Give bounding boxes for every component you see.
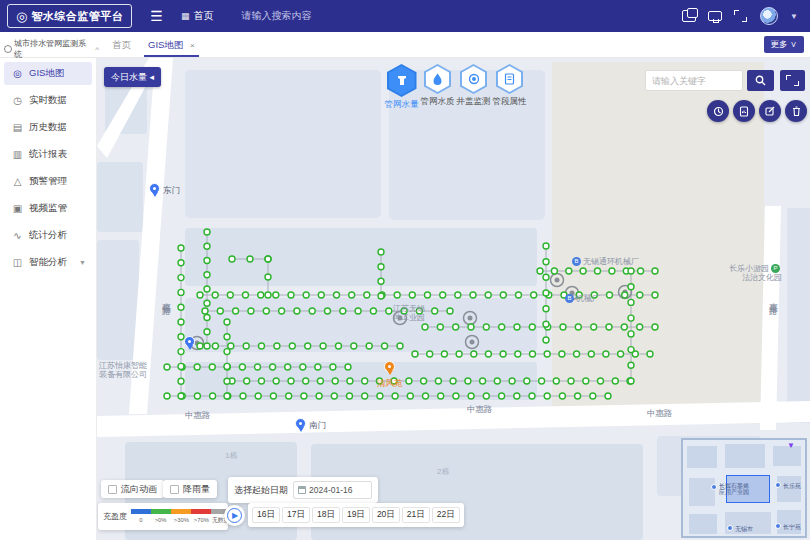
report-icon (739, 106, 749, 117)
date-button-22[interactable]: 22日 (432, 507, 460, 523)
water-meter-icon (396, 75, 408, 87)
alert-icon: △ (12, 176, 23, 187)
date-button-18[interactable]: 18日 (312, 507, 340, 523)
legend-item: >0% (151, 509, 171, 525)
minimap-pin (711, 484, 717, 490)
map-pin[interactable] (184, 336, 195, 350)
app-logo: ◎ 智水综合监管平台 (7, 4, 132, 28)
sidebar-item-realtime-data[interactable]: ◷ 实时数据 (4, 89, 92, 112)
line-chart-icon: ∿ (12, 230, 23, 241)
keyword-search-input[interactable] (645, 70, 743, 91)
tab-close-icon[interactable]: × (190, 41, 195, 50)
analysis-icon: ◫ (12, 257, 23, 268)
tab-gis-map[interactable]: GIS地图 × (144, 32, 199, 57)
legend-item: >70% (191, 509, 211, 525)
water-swirl-logo-icon: ◎ (16, 9, 27, 24)
clock-icon: ◷ (12, 95, 23, 106)
sidebar-item-video-monitor[interactable]: ▣ 视频监管 (4, 197, 92, 220)
menu-toggle-icon[interactable]: ☰ (150, 8, 163, 24)
checkbox-icon (170, 485, 179, 494)
play-button[interactable]: ▶ (224, 505, 245, 526)
minimap-label: 长辉石墨烯应用产业园 (719, 482, 749, 495)
calendar-icon (298, 486, 306, 494)
history-icon: ▤ (12, 122, 23, 133)
legend-title: 充盈度 (103, 511, 127, 522)
minimap-pin (775, 523, 781, 529)
date-input[interactable]: 2024-01-16 (293, 481, 372, 499)
compass-icon: ◎ (12, 68, 23, 79)
nav-home[interactable]: ▦ 首页 (181, 9, 214, 23)
user-avatar[interactable] (760, 7, 778, 25)
date-picker-label: 选择起始日期 (234, 484, 288, 497)
sidebar-item-smart-analysis[interactable]: ◫ 智能分析 ▼ (4, 251, 92, 274)
more-button[interactable]: 更多 ∨ (764, 36, 804, 53)
chevron-down-icon: ▼ (79, 259, 86, 266)
date-button-row: 16日 17日 18日 19日 20日 21日 22日 (248, 503, 464, 527)
legend-item: >30% (171, 509, 191, 525)
layer-manhole-monitor[interactable]: 井盖监测 (457, 64, 490, 111)
date-button-19[interactable]: 19日 (342, 507, 370, 523)
delete-button[interactable] (785, 100, 807, 122)
minimap-marker-icon: ▼ (787, 441, 795, 450)
map-pin-qingfeng[interactable] (384, 361, 395, 375)
system-icon (4, 45, 12, 53)
map-tool-buttons (707, 100, 807, 122)
sidebar-item-statistic-analysis[interactable]: ∿ 统计分析 (4, 224, 92, 247)
rainfall-checkbox[interactable]: 降雨量 (163, 480, 217, 498)
legend-item: 0 (131, 509, 151, 525)
gis-map-canvas[interactable]: 惠畅路 中惠路 中惠路 中惠路 惠草路 1栋 2栋 B无锡通环机械厂 B机械厂 … (97, 58, 810, 540)
search-button[interactable] (747, 70, 774, 91)
date-button-21[interactable]: 21日 (402, 507, 430, 523)
fullscreen-icon[interactable] (734, 10, 748, 22)
app-title: 智水综合监管平台 (31, 9, 123, 24)
today-water-button[interactable]: 今日水量 ◂ (104, 67, 161, 87)
layer-pipe-water-quality[interactable]: 管网水质 (421, 64, 454, 111)
app-window: ◎ 智水综合监管平台 ☰ ▦ 首页 请输入搜索内容 ▼ 城市排水管网监测系统 ^… (0, 0, 810, 540)
home-grid-icon: ▦ (181, 11, 190, 21)
map-pin-south-gate[interactable] (295, 418, 306, 432)
sidebar-item-alert-management[interactable]: △ 预警管理 (4, 170, 92, 193)
water-drop-icon (432, 73, 443, 85)
trash-icon (792, 106, 801, 117)
layer-pipe-attributes[interactable]: 管段属性 (493, 64, 526, 111)
manhole-icon (468, 73, 480, 85)
split-screen-icon[interactable] (682, 10, 696, 22)
nav-home-label: 首页 (193, 9, 213, 23)
layer-button-row: 管网水量 管网水质 井盖监测 管段属性 (385, 64, 526, 111)
collapse-caret-icon: ^ (95, 45, 99, 54)
sidebar: ◎ GIS地图 ◷ 实时数据 ▤ 历史数据 ▥ 统计报表 △ 预警管理 ▣ 视频… (0, 58, 97, 540)
header-actions: ▼ (682, 7, 798, 25)
top-header: ◎ 智水综合监管平台 ☰ ▦ 首页 请输入搜索内容 ▼ (0, 0, 810, 32)
map-search-bar (645, 70, 805, 91)
play-icon: ▶ (227, 508, 242, 523)
minimap-pin (727, 525, 733, 531)
edit-button[interactable] (759, 100, 781, 122)
sidebar-item-statistic-report[interactable]: ▥ 统计报表 (4, 143, 92, 166)
document-icon (504, 73, 515, 85)
sidebar-item-gis-map[interactable]: ◎ GIS地图 (4, 62, 92, 85)
fullness-legend: 充盈度 0 >0% >30% >70% 无数据 (98, 503, 228, 530)
report-button[interactable] (733, 100, 755, 122)
tab-bar: 城市排水管网监测系统 ^ 首页 GIS地图 × 更多 ∨ (0, 32, 810, 58)
search-icon (755, 75, 766, 86)
date-button-16[interactable]: 16日 (252, 507, 280, 523)
system-title[interactable]: 城市排水管网监测系统 ^ (4, 38, 99, 60)
tab-home[interactable]: 首页 (112, 32, 131, 57)
monitor-icon[interactable] (708, 11, 722, 21)
start-date-picker: 选择起始日期 2024-01-16 (228, 477, 378, 503)
layer-pipe-water-volume[interactable]: 管网水量 (385, 64, 418, 111)
sidebar-item-history-data[interactable]: ▤ 历史数据 (4, 116, 92, 139)
edit-icon (765, 106, 775, 116)
measure-button[interactable] (707, 100, 729, 122)
video-icon: ▣ (12, 203, 23, 214)
minimap-label: 无锡市 (735, 525, 753, 531)
minimap-pin (775, 482, 781, 488)
map-pin-east-gate[interactable] (149, 183, 160, 197)
date-button-20[interactable]: 20日 (372, 507, 400, 523)
bar-chart-icon: ▥ (12, 149, 23, 160)
checkbox-icon (108, 485, 117, 494)
date-button-17[interactable]: 17日 (282, 507, 310, 523)
measure-icon (713, 106, 724, 117)
overview-minimap[interactable]: ▼ 长辉石墨烯应用产业园 长乐苑 无锡市 长宁苑 (681, 438, 807, 538)
minimap-label: 长乐苑 (783, 482, 801, 488)
minimap-label: 长宁苑 (783, 523, 801, 529)
header-search[interactable]: 请输入搜索内容 (241, 9, 311, 23)
flow-animation-checkbox[interactable]: 流向动画 (101, 480, 164, 498)
map-fullscreen-button[interactable] (780, 70, 805, 91)
user-menu-chevron-down-icon[interactable]: ▼ (790, 12, 798, 21)
